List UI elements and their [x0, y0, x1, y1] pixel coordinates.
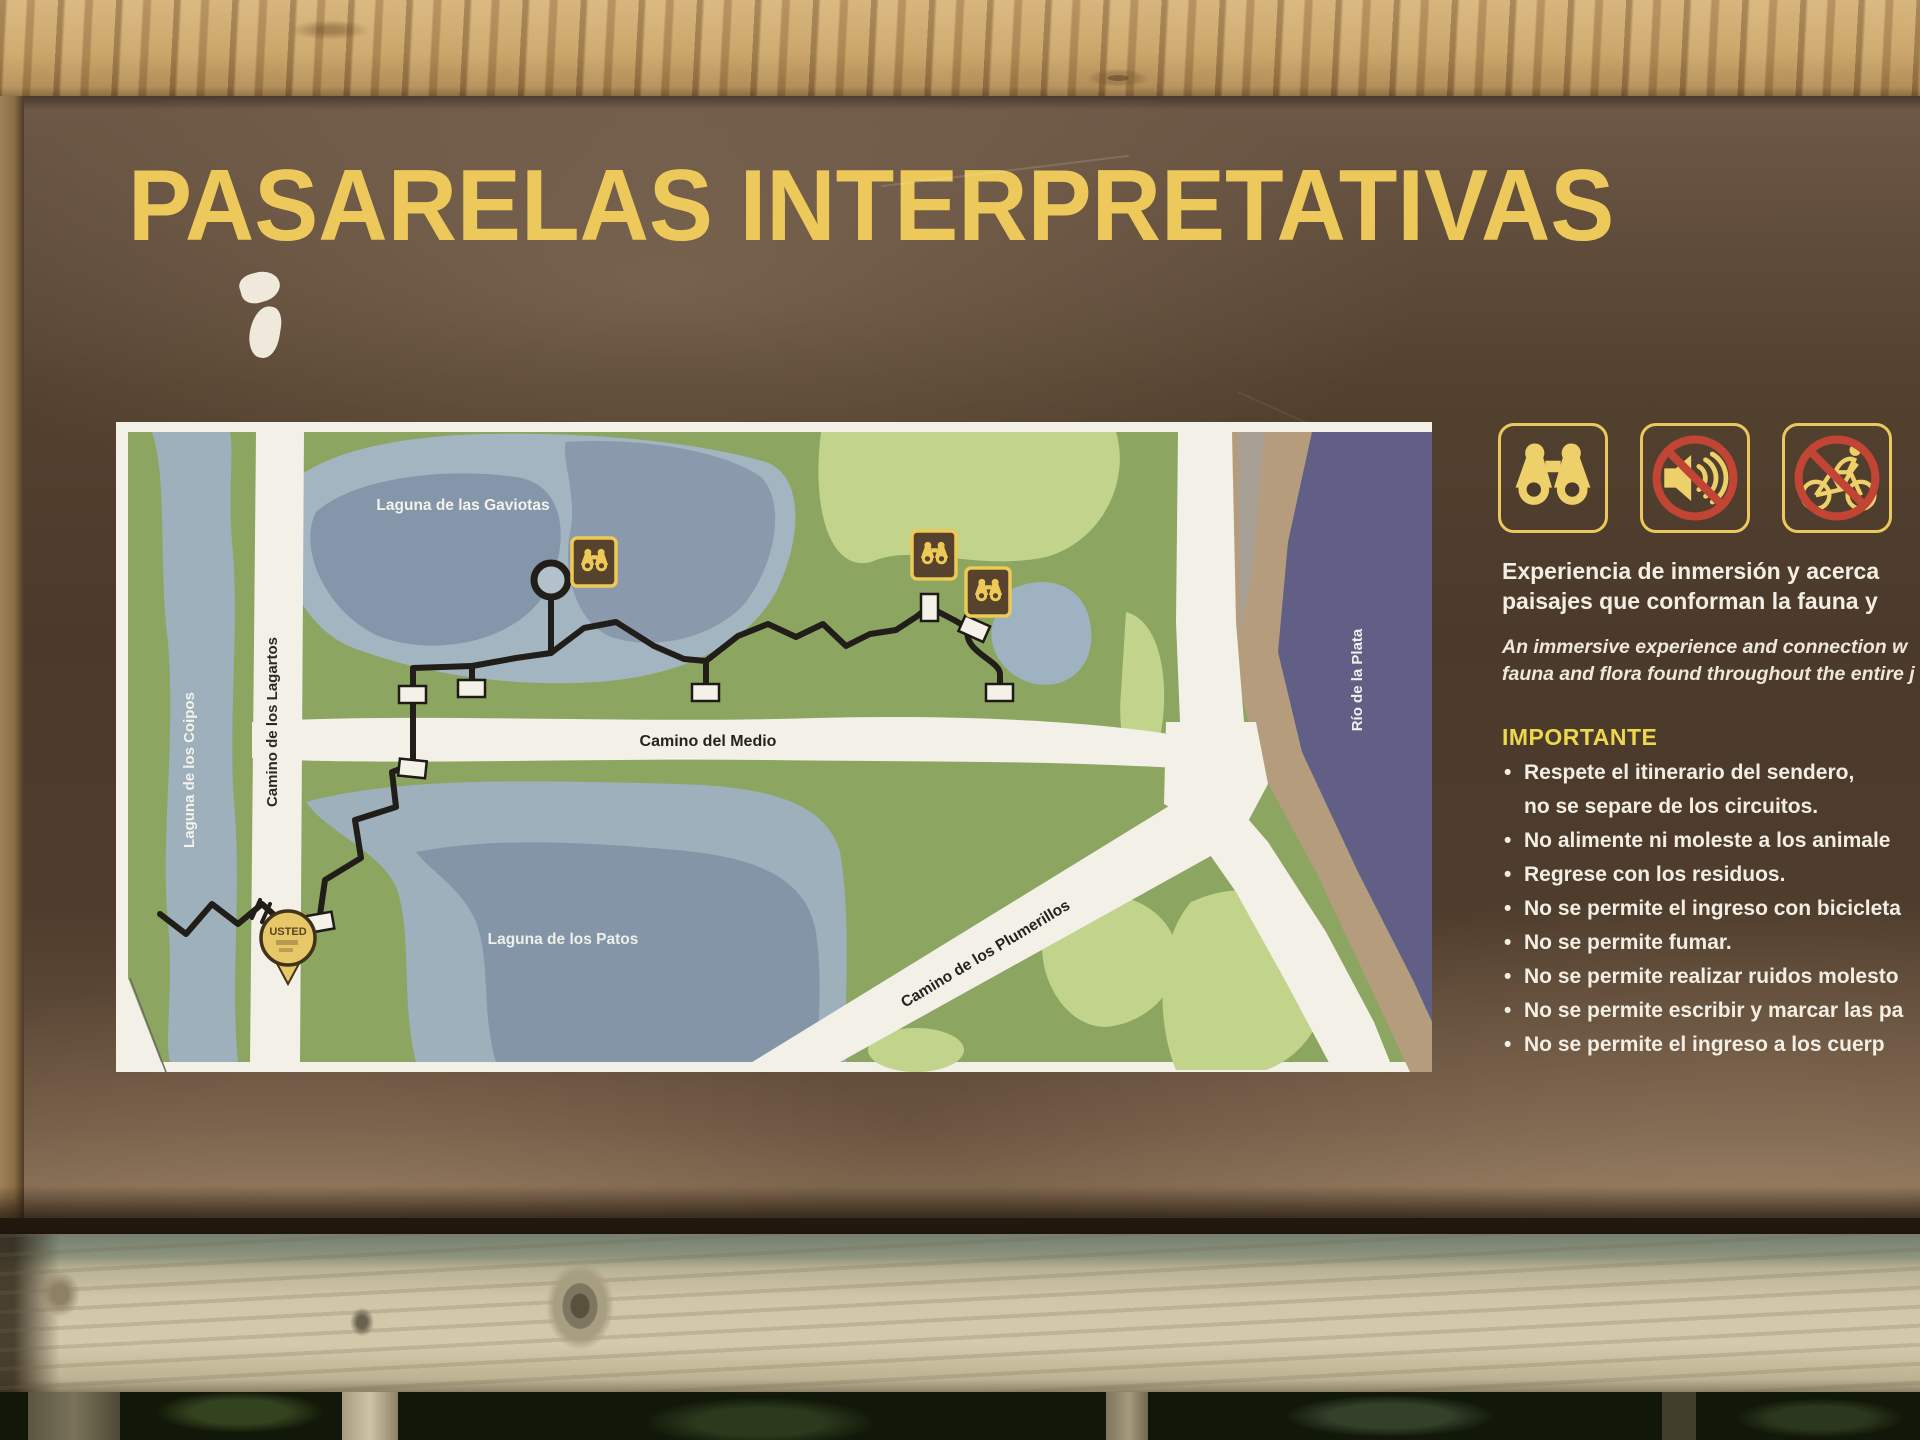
label-camino-medio: Camino del Medio	[640, 733, 777, 750]
trail-map: USTED Laguna de las Gaviotas Laguna de l…	[116, 422, 1432, 1072]
intro-english: An immersive experience and connection w…	[1502, 634, 1915, 688]
wood-bottom-beam	[0, 1234, 1920, 1392]
binoculars-pictogram	[1498, 423, 1608, 533]
platform-marker	[458, 680, 485, 697]
label-rio-plata: Río de la Plata	[1349, 628, 1366, 731]
important-heading: IMPORTANTE	[1502, 724, 1657, 751]
pictogram-row	[1498, 423, 1918, 533]
wood-top-plank	[0, 0, 1920, 96]
wood-left-frame	[0, 96, 24, 1218]
platform-marker	[921, 594, 938, 621]
no-noise-icon	[1647, 430, 1743, 526]
platform-marker	[692, 684, 719, 701]
board-bottom-shadow	[0, 1186, 1920, 1234]
trail-map-canvas: USTED Laguna de las Gaviotas Laguna de l…	[116, 422, 1432, 1072]
rule-item: No se permite fumar.	[1502, 926, 1920, 960]
lookout-ring	[534, 563, 568, 597]
no-noise-pictogram	[1640, 423, 1750, 533]
platform-marker	[986, 684, 1013, 701]
rule-item: No se permite realizar ruidos molesto	[1502, 960, 1920, 994]
platform-marker	[398, 759, 427, 779]
viewpoint-sign-1	[572, 538, 616, 586]
rule-item: No alimente ni moleste a los animale	[1502, 824, 1920, 858]
no-bicycles-pictogram	[1782, 423, 1892, 533]
viewpoint-sign-2	[912, 531, 956, 579]
label-laguna-patos: Laguna de los Patos	[488, 931, 639, 948]
wood-post	[28, 1392, 120, 1440]
rule-item: No se permite el ingreso con bicicleta	[1502, 892, 1920, 926]
no-bicycle-icon	[1789, 430, 1885, 526]
intro-spanish: Experiencia de inmersión y acerca paisaj…	[1502, 556, 1879, 616]
rule-item: Respete el itinerario del sendero, no se…	[1502, 756, 1920, 824]
wood-post	[1662, 1392, 1696, 1440]
label-camino-lagartos: Camino de los Lagartos	[264, 637, 281, 807]
label-laguna-gaviotas: Laguna de las Gaviotas	[376, 497, 549, 514]
binoculars-icon	[1505, 430, 1601, 526]
viewpoint-sign-3	[966, 568, 1010, 616]
label-laguna-coipos: Laguna de los Coipos	[181, 692, 198, 848]
rule-item: No se permite escribir y marcar las pa	[1502, 994, 1920, 1028]
wood-post	[342, 1392, 398, 1440]
rules-list: Respete el itinerario del sendero, no se…	[1502, 756, 1920, 1062]
rule-item: No se permite el ingreso a los cuerp	[1502, 1028, 1920, 1062]
you-are-here-label: USTED	[269, 926, 306, 938]
wood-post	[1106, 1392, 1148, 1440]
platform-marker	[399, 686, 426, 703]
rule-item: Regrese con los residuos.	[1502, 858, 1920, 892]
sign-title: PASARELAS INTERPRETATIVAS	[128, 156, 1614, 257]
background-foliage	[0, 1392, 1920, 1440]
